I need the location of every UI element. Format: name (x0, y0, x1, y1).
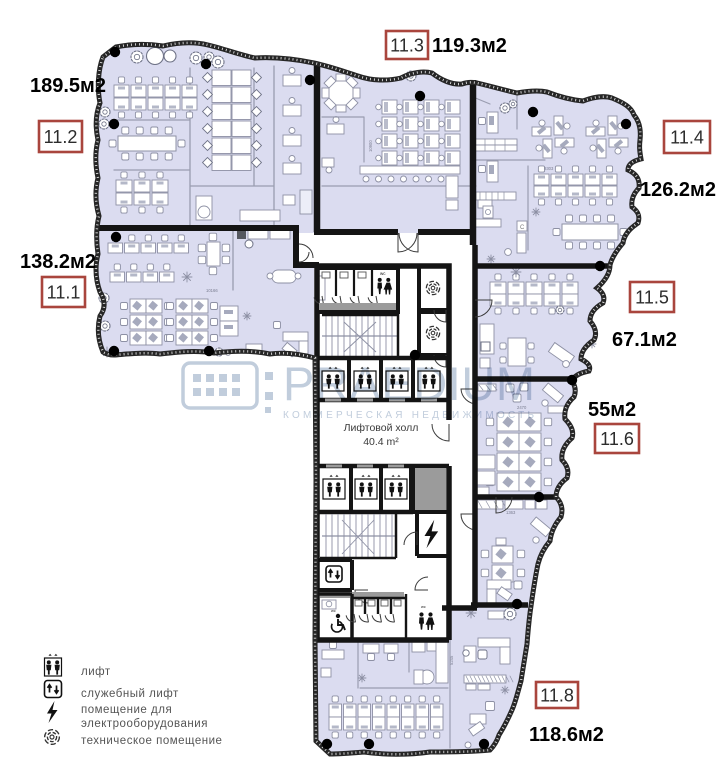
svg-text:119.3м2: 119.3м2 (432, 35, 507, 57)
svg-text:wc: wc (421, 605, 426, 609)
svg-text:118.6м2: 118.6м2 (529, 724, 604, 746)
svg-text:5245: 5245 (449, 655, 454, 665)
svg-text:КОММЕРЧЕСКАЯ НЕДВИЖИМОСТЬ: КОММЕРЧЕСКАЯ НЕДВИЖИМОСТЬ (283, 410, 536, 421)
svg-text:67.1м2: 67.1м2 (612, 329, 677, 351)
svg-text:11.4: 11.4 (670, 127, 704, 147)
svg-text:55м2: 55м2 (588, 399, 636, 421)
svg-text:служебный лифт: служебный лифт (81, 688, 179, 700)
svg-text:Лифтовой холл: Лифтовой холл (344, 422, 419, 434)
svg-text:11.1: 11.1 (47, 282, 81, 302)
svg-text:1363: 1363 (506, 510, 516, 515)
svg-text:лифт: лифт (81, 666, 111, 678)
svg-text:189.5м2: 189.5м2 (30, 75, 106, 97)
svg-text:40.4 m²: 40.4 m² (363, 436, 399, 448)
svg-text:10900: 10900 (368, 140, 373, 152)
svg-text:wc: wc (380, 271, 386, 276)
svg-text:9303: 9303 (544, 166, 554, 171)
svg-text:C: C (520, 225, 525, 231)
svg-text:PRAEDIUM: PRAEDIUM (283, 357, 537, 410)
svg-text:126.2м2: 126.2м2 (640, 179, 716, 201)
svg-text:11.2: 11.2 (44, 127, 78, 147)
svg-text:wc: wc (331, 609, 336, 613)
svg-text:138.2м2: 138.2м2 (20, 251, 96, 273)
svg-text:11.3: 11.3 (390, 35, 424, 55)
svg-text:10166: 10166 (206, 288, 218, 293)
svg-text:техническое помещение: техническое помещение (81, 735, 222, 747)
svg-text:электрооборудования: электрооборудования (81, 718, 208, 730)
svg-text:помещение для: помещение для (81, 704, 172, 716)
svg-text:11.5: 11.5 (635, 287, 669, 307)
svg-text:11.8: 11.8 (540, 685, 574, 705)
svg-text:11.6: 11.6 (600, 429, 634, 449)
